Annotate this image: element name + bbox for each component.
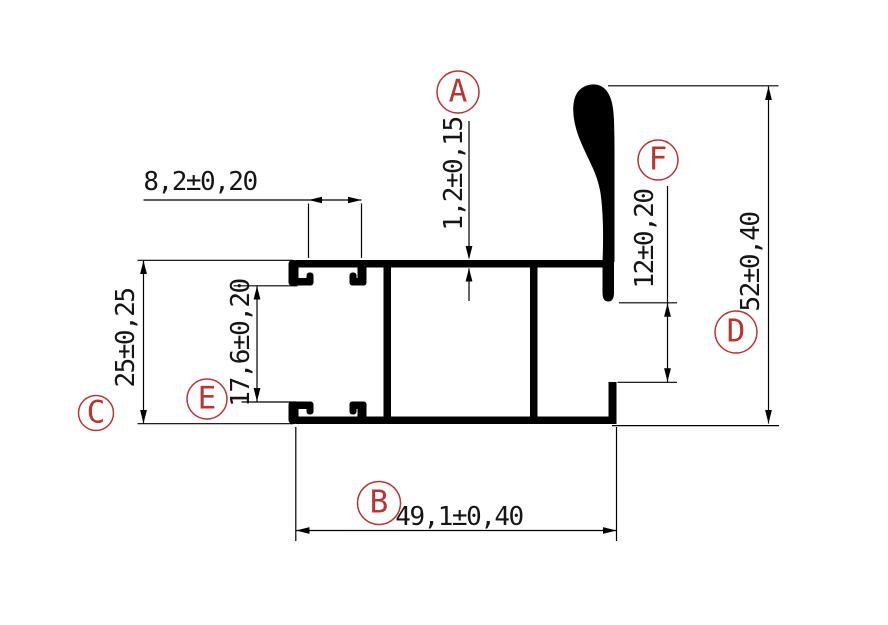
arrow-body-top xyxy=(140,261,147,275)
technical-drawing-canvas: 8,2±0,20 1,2±0,15 25±0,25 17,6±0,20 12±0… xyxy=(0,0,888,625)
callout-letter-d: D xyxy=(727,317,746,348)
arrow-finstep-bottom xyxy=(664,368,671,382)
callout-letter-b: B xyxy=(370,488,389,519)
profile-bottom-wall xyxy=(296,417,617,425)
arrow-groove-right xyxy=(348,197,362,203)
profile-fin-lower-stem xyxy=(603,262,615,302)
arrow-wall-bottom xyxy=(466,268,473,282)
arrow-owidth-right xyxy=(603,527,617,534)
callout-letter-a: A xyxy=(449,77,468,108)
arrow-oheight-top xyxy=(765,87,772,101)
callout-circles xyxy=(79,71,758,525)
profile-top-wall xyxy=(296,260,606,268)
arrow-oheight-bottom xyxy=(765,410,772,424)
dim-text-overall-width: 49,1±0,40 xyxy=(395,504,522,530)
callout-letter-c: C xyxy=(87,398,106,429)
arrow-wall-top xyxy=(466,246,473,260)
dim-text-overall-height: 52±0,40 xyxy=(738,212,764,311)
callout-letter-f: F xyxy=(649,145,668,176)
dim-text-channel-inner-height: 17,6±0,20 xyxy=(228,279,254,406)
arrow-body-bottom xyxy=(140,410,147,424)
dim-text-wall-thickness: 1,2±0,15 xyxy=(441,117,467,230)
profile-web-right xyxy=(530,260,538,424)
profile-fin-upper xyxy=(573,84,614,262)
arrow-groove-left xyxy=(309,197,323,203)
dim-text-groove-width: 8,2±0,20 xyxy=(143,169,256,195)
dim-lines-groove-width xyxy=(144,200,362,258)
dim-text-body-height: 25±0,25 xyxy=(113,288,139,387)
callout-letter-e: E xyxy=(198,384,217,415)
profile-web-left xyxy=(384,260,392,424)
arrow-finstep-top xyxy=(664,303,671,317)
profile-right-step-wall xyxy=(609,382,617,424)
dim-text-fin-to-step: 12±0,20 xyxy=(632,189,658,288)
arrow-owidth-left xyxy=(296,527,310,534)
